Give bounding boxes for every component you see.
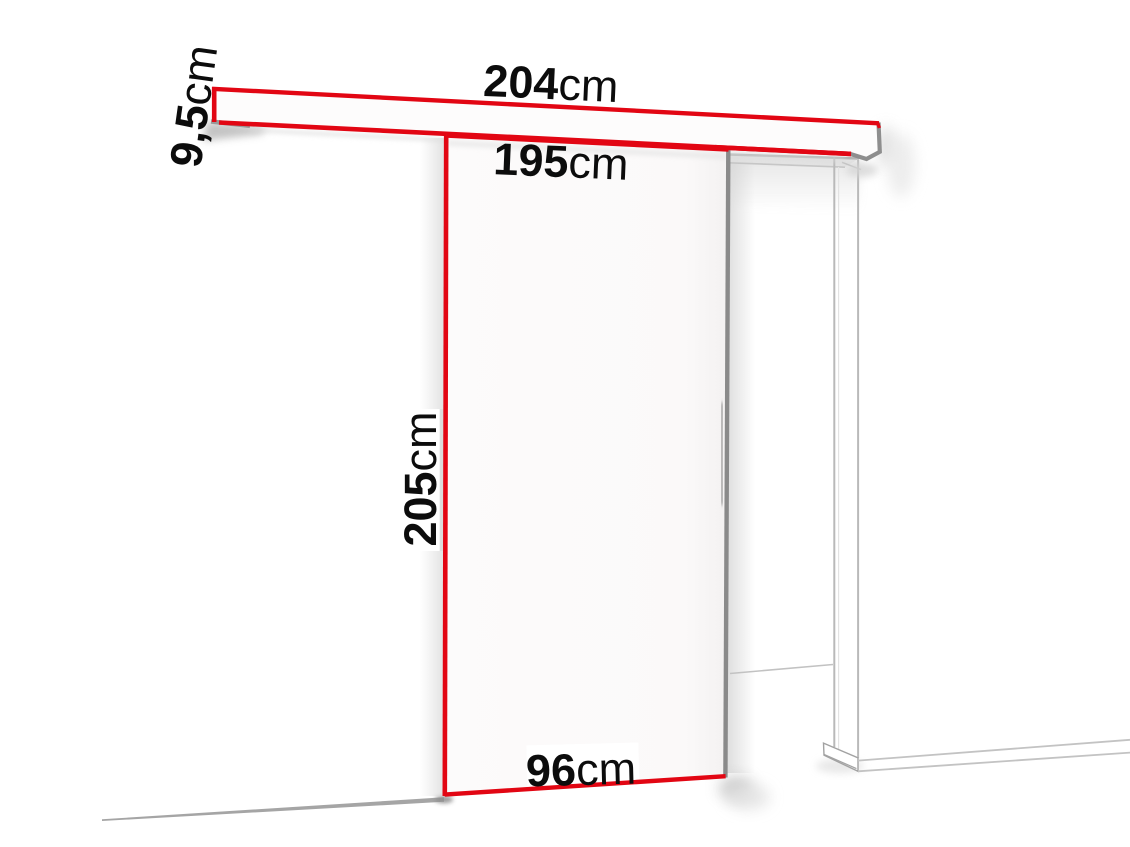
svg-text:204cm: 204cm (482, 55, 619, 112)
svg-text:195cm: 195cm (492, 133, 629, 190)
svg-text:205cm: 205cm (395, 411, 446, 546)
svg-text:96cm: 96cm (525, 743, 636, 797)
